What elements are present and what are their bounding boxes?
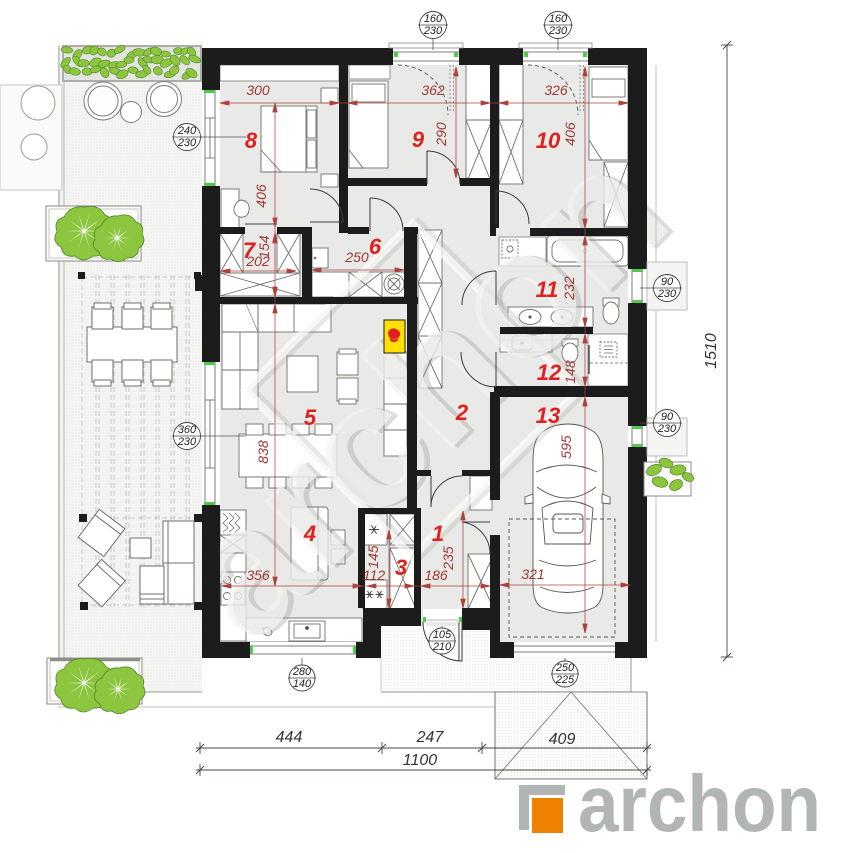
svg-text:838: 838 — [255, 440, 271, 464]
svg-text:13: 13 — [536, 403, 560, 428]
svg-text:230: 230 — [548, 25, 568, 37]
svg-text:362: 362 — [421, 82, 445, 98]
svg-text:12: 12 — [537, 360, 562, 385]
svg-text:406: 406 — [562, 122, 578, 146]
svg-text:225: 225 — [555, 674, 575, 686]
svg-text:6: 6 — [369, 234, 382, 259]
svg-text:356: 356 — [246, 567, 270, 583]
svg-text:210: 210 — [432, 641, 452, 653]
svg-text:140: 140 — [293, 678, 312, 690]
svg-text:232: 232 — [561, 276, 577, 301]
svg-text:archon: archon — [578, 759, 821, 848]
svg-text:145: 145 — [365, 545, 381, 569]
svg-text:105: 105 — [433, 629, 452, 641]
svg-text:90: 90 — [661, 411, 674, 423]
svg-text:230: 230 — [657, 423, 677, 435]
svg-text:326: 326 — [544, 82, 568, 98]
svg-text:160: 160 — [549, 13, 568, 25]
svg-text:250: 250 — [555, 662, 575, 674]
svg-text:595: 595 — [558, 435, 574, 459]
svg-text:1510: 1510 — [703, 333, 720, 369]
svg-text:11: 11 — [536, 277, 559, 302]
svg-text:300: 300 — [246, 82, 270, 98]
svg-text:148: 148 — [562, 360, 578, 384]
svg-text:290: 290 — [433, 122, 449, 147]
svg-text:444: 444 — [276, 729, 303, 746]
svg-text:230: 230 — [177, 436, 197, 448]
svg-text:1: 1 — [432, 521, 444, 546]
svg-text:240: 240 — [177, 125, 197, 137]
svg-text:90: 90 — [661, 276, 674, 288]
svg-text:2: 2 — [455, 400, 469, 425]
svg-text:5: 5 — [304, 405, 317, 430]
svg-text:10: 10 — [536, 128, 561, 153]
svg-text:235: 235 — [440, 546, 456, 571]
svg-text:406: 406 — [253, 184, 269, 208]
svg-text:360: 360 — [178, 424, 197, 436]
svg-text:4: 4 — [303, 521, 316, 546]
svg-text:230: 230 — [177, 137, 197, 149]
svg-text:7: 7 — [243, 238, 257, 263]
svg-text:409: 409 — [549, 731, 576, 748]
svg-text:230: 230 — [423, 25, 443, 37]
svg-text:1100: 1100 — [403, 752, 438, 769]
svg-text:321: 321 — [521, 566, 544, 582]
svg-text:280: 280 — [292, 666, 312, 678]
svg-text:247: 247 — [416, 729, 445, 746]
svg-text:9: 9 — [412, 127, 425, 152]
svg-text:230: 230 — [657, 288, 677, 300]
svg-text:3: 3 — [395, 555, 407, 580]
svg-text:250: 250 — [344, 249, 369, 265]
svg-text:8: 8 — [245, 128, 258, 153]
svg-text:160: 160 — [424, 13, 443, 25]
